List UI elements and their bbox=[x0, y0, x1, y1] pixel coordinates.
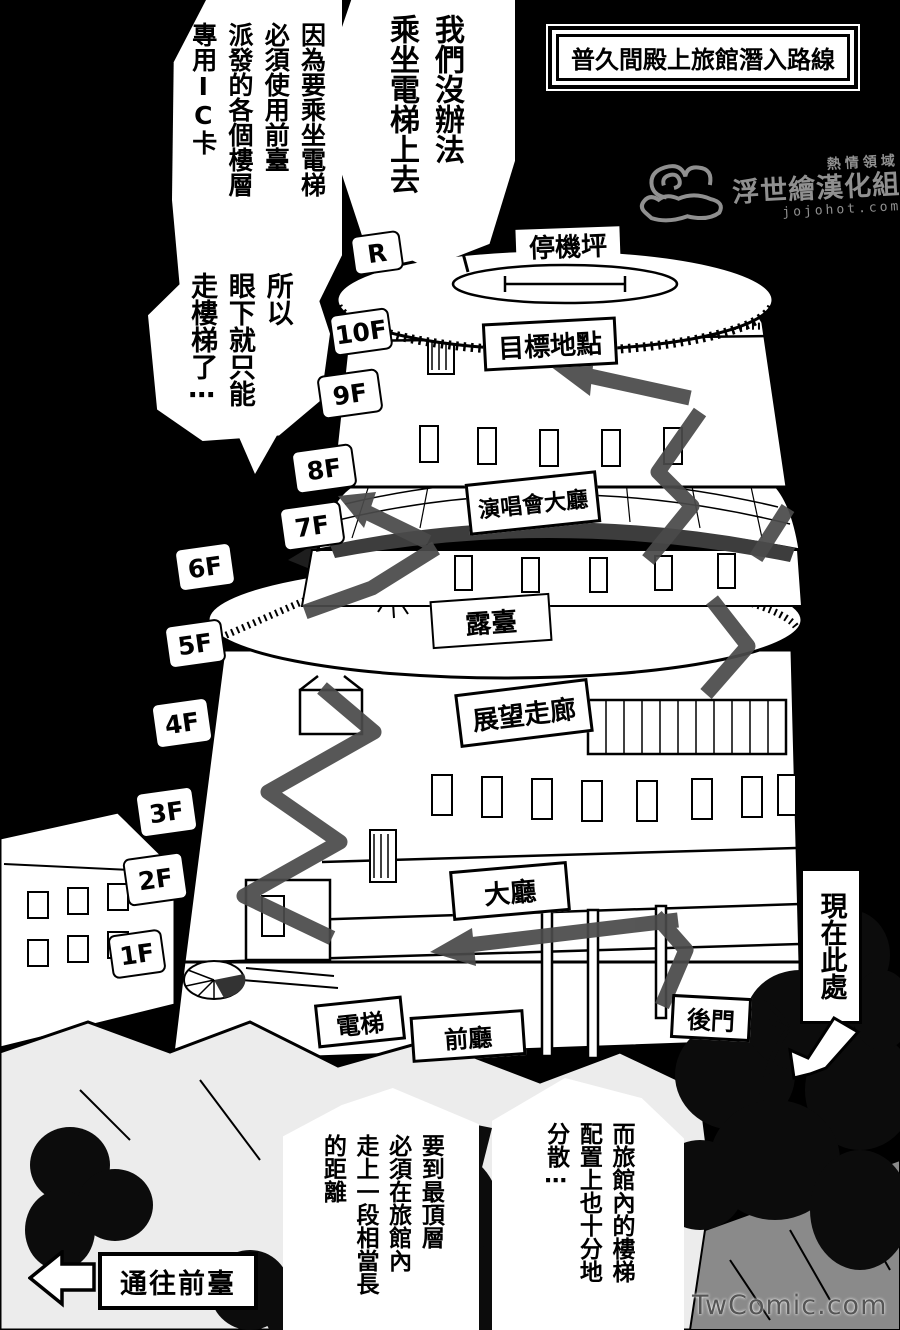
floor-label-text: 9F bbox=[331, 377, 369, 411]
floor-label-text: 2F bbox=[136, 862, 174, 896]
bubble-text: 而旅館內的樓梯 配置上也十分地 分散⋯ bbox=[539, 1078, 637, 1330]
floor-label-text: 4F bbox=[163, 706, 201, 740]
bubble-text: 所以 眼下就只能 走樓梯了⋯ bbox=[182, 256, 295, 441]
site-credit: TwComic.com bbox=[692, 1290, 887, 1321]
speech-bubble-no-elevator: 我們沒辦法 乘坐電梯上去 bbox=[333, 0, 515, 268]
bubble-text: 我們沒辦法 乘坐電梯上去 bbox=[379, 0, 469, 268]
label-elevator: 電梯 bbox=[314, 996, 406, 1049]
label-front-hall: 前廳 bbox=[410, 1009, 527, 1063]
floor-label-text: 6F bbox=[186, 550, 224, 584]
floor-label-text: 5F bbox=[176, 627, 214, 661]
route-title-box: 普久間殿上旅館潛入路線 bbox=[548, 26, 858, 89]
floor-label-text: R bbox=[365, 237, 388, 268]
watermark-text: 熱情領域 浮世繪漢化組 jojohot.com bbox=[731, 153, 900, 224]
floor-label-text: 3F bbox=[147, 795, 185, 829]
floor-label-text: 8F bbox=[305, 452, 343, 486]
label-terrace: 露臺 bbox=[429, 593, 552, 649]
manga-page: 我們沒辦法 乘坐電梯上去 因為要乘坐電梯 必須使用前臺 派發的各個樓層 專用IC… bbox=[0, 0, 900, 1330]
floor-label-6f: 6F bbox=[173, 541, 237, 593]
floor-label-4f: 4F bbox=[150, 696, 214, 750]
label-back-door: 後門 bbox=[670, 994, 752, 1042]
floor-label-2f: 2F bbox=[122, 851, 189, 907]
bubble-text: 要到最頂層 必須在旅館內 走上一段相當長 的距離 bbox=[316, 1088, 447, 1330]
floor-label-text: 1F bbox=[118, 937, 156, 971]
current-location-arrow-icon bbox=[786, 1016, 864, 1082]
floor-label-3f: 3F bbox=[134, 785, 199, 839]
cloud-logo-icon bbox=[634, 152, 730, 229]
floor-label-5f: 5F bbox=[163, 618, 227, 670]
floor-label-text: 10F bbox=[333, 314, 388, 350]
floor-label-text: 7F bbox=[293, 509, 331, 543]
speech-bubble-scattered-stairs: 而旅館內的樓梯 配置上也十分地 分散⋯ bbox=[492, 1078, 684, 1330]
floor-label-1f: 1F bbox=[107, 928, 167, 979]
current-location-text: 現在此處 bbox=[818, 892, 845, 1000]
left-arrow-icon bbox=[28, 1250, 98, 1308]
label-lobby: 大廳 bbox=[449, 861, 571, 921]
current-location-box: 現在此處 bbox=[800, 868, 862, 1024]
floor-label-r: R bbox=[349, 230, 404, 277]
speech-bubble-long-distance: 要到最頂層 必須在旅館內 走上一段相當長 的距離 bbox=[283, 1088, 479, 1330]
label-target-location: 目標地點 bbox=[482, 317, 618, 372]
label-helipad: 停機坪 bbox=[515, 226, 620, 264]
floor-label-7f: 7F bbox=[278, 500, 346, 552]
floor-label-10f: 10F bbox=[328, 307, 393, 357]
page-title: 普久間殿上旅館潛入路線 bbox=[556, 34, 850, 81]
floor-label-9f: 9F bbox=[316, 368, 384, 420]
to-front-desk-sign: 通往前臺 bbox=[98, 1252, 258, 1310]
floor-label-8f: 8F bbox=[290, 443, 358, 495]
scanlation-watermark: 熱情領域 浮世繪漢化組 jojohot.com bbox=[634, 143, 900, 229]
